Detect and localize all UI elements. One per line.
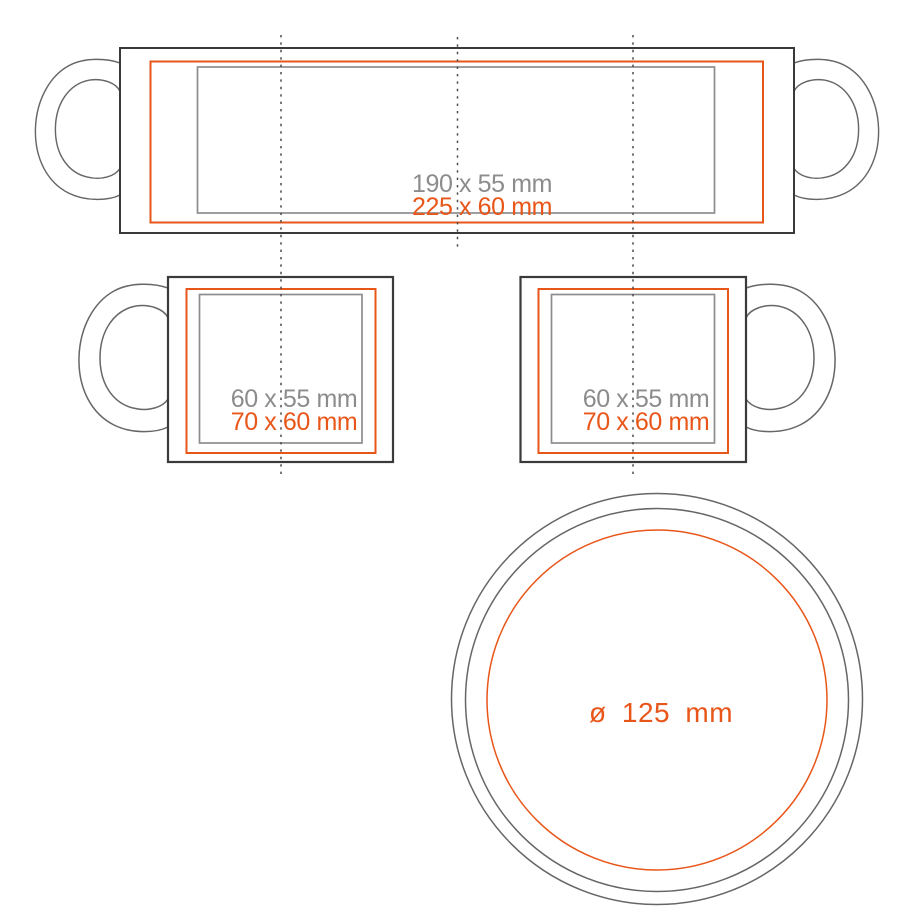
right-mug-handle-icon bbox=[746, 284, 835, 431]
right-mug-bleed-size-label: 70 x 60 mm bbox=[583, 408, 710, 436]
wrap-bleed-size-label: 225 x 60 mm bbox=[412, 193, 552, 221]
mug-print-area-spec-page: 190 x 55 mm 225 x 60 mm 60 x 55 mm 70 x … bbox=[0, 0, 900, 923]
wrap-left-handle-icon bbox=[35, 59, 120, 199]
left-mug-bleed-size-label: 70 x 60 mm bbox=[231, 408, 358, 436]
bottom-diameter-label: ø 125 mm bbox=[589, 697, 733, 728]
wrap-right-handle-icon bbox=[794, 59, 879, 199]
left-mug-handle-icon bbox=[79, 284, 168, 431]
mug-print-areas-diagram: 190 x 55 mm 225 x 60 mm 60 x 55 mm 70 x … bbox=[0, 0, 900, 923]
